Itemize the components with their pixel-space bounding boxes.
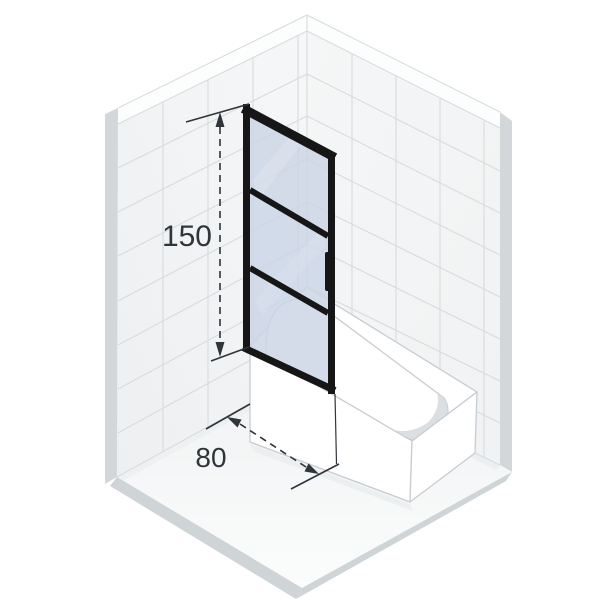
height-dimension-label: 150 [162, 220, 212, 253]
left-wall-outer-edge [105, 108, 118, 484]
width-dimension-label: 80 [195, 442, 226, 473]
screen-handle [325, 252, 335, 291]
diagram-canvas: 150 80 [0, 0, 600, 600]
bath-screen [243, 104, 335, 394]
bathroom-isometric-diagram: 150 80 [0, 0, 600, 600]
right-wall-outer-edge [500, 112, 512, 472]
